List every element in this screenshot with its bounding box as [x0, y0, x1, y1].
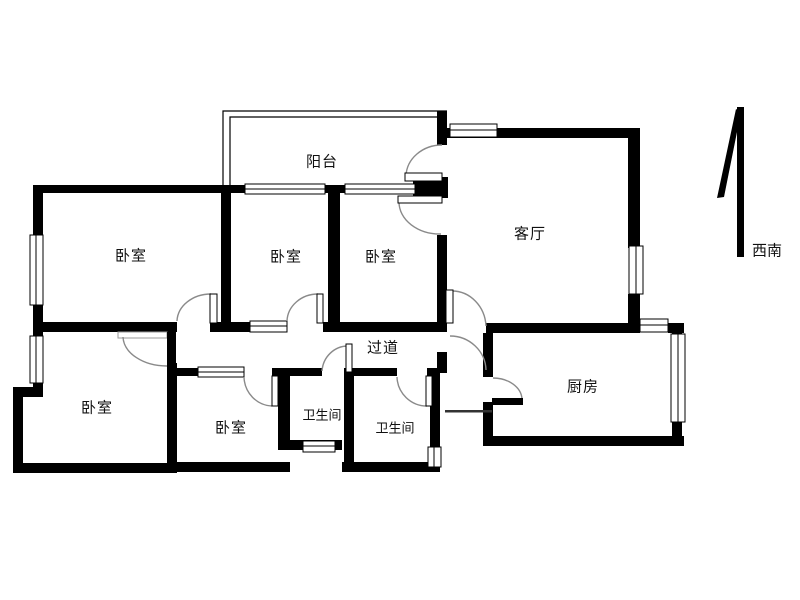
wall-kitchen-north-2	[668, 323, 684, 333]
floorplan-drawing	[0, 0, 800, 600]
window-living-north	[450, 124, 497, 137]
wall-kitchen-south	[483, 436, 684, 446]
room-label-bedroom-top-middle: 卧室	[270, 246, 302, 267]
wall-bedroom-bm-east	[278, 368, 290, 450]
door-arc-bedroom-bottom-middle	[244, 377, 272, 406]
windows	[30, 124, 685, 467]
door-leaf-bedroom-bottom-middle	[272, 376, 278, 406]
window-bedroom-top-middle-south	[250, 321, 287, 332]
door-leaf-bathroom-left	[346, 344, 352, 372]
threshold-bedroom-bottom-left	[118, 332, 167, 338]
wall-bathroom-right-north	[354, 368, 397, 376]
window-kitchen-east	[671, 334, 685, 422]
wall-bathroom-right-south	[342, 462, 440, 472]
window-corridor-south	[198, 367, 244, 377]
room-label-bedroom-bottom-middle: 卧室	[215, 417, 247, 438]
compass-arrow-icon	[717, 107, 744, 257]
wall-west-lower	[13, 387, 23, 473]
wall-corridor-north-1	[37, 322, 177, 332]
wall-living-east-top	[628, 128, 640, 248]
wall-bedroom-bm-south	[167, 462, 290, 472]
door-leaf-bathroom-right	[426, 376, 432, 406]
door-arc-bathroom-left	[322, 346, 348, 371]
room-label-kitchen: 厨房	[567, 376, 599, 397]
door-leaf-bedroom-top-left	[210, 294, 217, 323]
entry-edge-line	[445, 410, 492, 413]
door-arc-living-room	[452, 291, 486, 326]
wall-corridor-south-2	[272, 368, 278, 376]
window-bedroom-top-right	[345, 184, 415, 194]
window-kitchen-north	[640, 319, 668, 332]
door-arc-bedroom-top-left	[177, 294, 211, 321]
door-arc-bedroom-top-middle	[287, 294, 318, 321]
wall-corridor-south-1	[177, 368, 198, 376]
wall-north-1	[37, 185, 245, 193]
wall-divider-bedroom-1-2	[221, 193, 231, 322]
door-arc-bathroom-right	[397, 377, 427, 406]
compass-direction-label: 西南	[752, 240, 782, 261]
door-leaf-balcony	[405, 173, 442, 181]
room-label-bedroom-top-left: 卧室	[115, 245, 147, 266]
wall-corridor-north-3	[323, 322, 447, 332]
wall-divider-bedroom-2-3	[328, 193, 340, 322]
door-arc-kitchen	[493, 378, 522, 399]
wall-south-bedroom-bottom-left	[13, 463, 177, 473]
door-arc-bedroom-bottom-left	[123, 337, 167, 366]
door-leaf-bedroom-top-middle	[317, 294, 323, 323]
room-label-bedroom-bottom-left: 卧室	[81, 397, 113, 418]
wall-bedroom-bottom-left-east	[167, 363, 177, 473]
window-bedroom-top-left-west	[30, 235, 43, 305]
window-bathroom-left-south	[303, 441, 335, 452]
room-label-bathroom-left: 卫生间	[302, 405, 341, 424]
room-label-bedroom-top-right: 卧室	[365, 246, 397, 267]
wall-kitchen-north-1	[486, 323, 640, 333]
room-label-balcony: 阳台	[306, 151, 338, 172]
door-leaf-kitchen	[492, 398, 523, 405]
door-arc-entry-hall	[450, 336, 486, 370]
window-living-east	[629, 246, 643, 294]
door-leaf-living-room	[446, 290, 453, 323]
window-bedroom-top-middle	[245, 184, 325, 194]
floorplan-canvas: 阳台 客厅 卧室 卧室 卧室 过道 卧室 卧室 卫生间 卫生间 厨房 西南	[0, 0, 800, 600]
window-bathroom-right-east	[428, 447, 441, 467]
door-arc-balcony	[406, 145, 442, 176]
room-label-living-room: 客厅	[514, 223, 546, 244]
wall-kitchen-west-top	[483, 333, 493, 377]
door-leaf-bedroom-bottom-left	[167, 332, 176, 366]
wall-bathroom-left-north	[290, 368, 322, 376]
room-label-bathroom-right: 卫生间	[375, 418, 414, 437]
wall-north-2	[325, 185, 345, 193]
room-label-hallway: 过道	[367, 337, 399, 358]
door-arc-bedroom-top-right	[399, 202, 441, 234]
walls	[13, 111, 684, 473]
wall-divider-bathrooms	[344, 368, 354, 472]
door-leaf-bedroom-top-right	[398, 196, 442, 203]
window-bedroom-bottom-left-west	[30, 336, 43, 383]
